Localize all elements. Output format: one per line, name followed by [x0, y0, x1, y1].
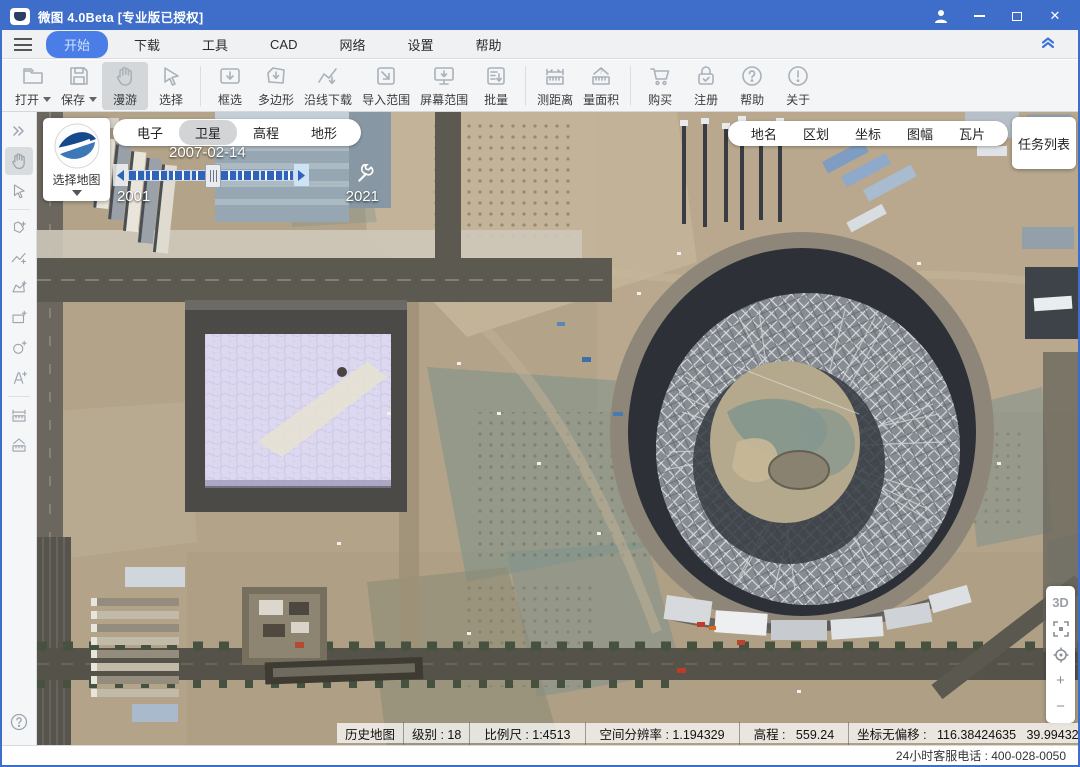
menu-tab-help[interactable]: 帮助: [460, 31, 518, 58]
buy-button[interactable]: 购买: [637, 62, 683, 110]
polygon-download-button[interactable]: 多边形: [253, 62, 299, 110]
footer-bar: 24小时客服电话 : 400-028-0050: [2, 745, 1078, 765]
sidebar-expand-icon[interactable]: [5, 117, 33, 145]
save-button[interactable]: 保存: [56, 62, 102, 110]
layer-tabs: 电子 卫星 高程 地形: [113, 119, 361, 146]
timeline-slider-handle[interactable]: [205, 164, 221, 188]
polyline-download-button[interactable]: 沿线下载: [299, 62, 357, 110]
box-download-icon: [218, 64, 243, 89]
ruler-distance-icon: [543, 64, 568, 89]
timeline-end-year: 2021: [346, 188, 379, 205]
ribbon-toolbar: 打开 保存 漫游 选择 框选 多边形 沿线下载 导入范围: [2, 60, 1078, 112]
service-phone: 24小时客服电话 : 400-028-0050: [896, 747, 1066, 764]
question-circle-icon: [740, 64, 765, 89]
map-status-bar: 历史地图 级别 : 18 比例尺 : 1:4513 空间分辨率 : 1.1943…: [337, 723, 1078, 743]
help-button[interactable]: 帮助: [729, 62, 775, 110]
minimize-button[interactable]: [962, 4, 996, 28]
satellite-imagery: [37, 112, 1078, 745]
menu-tab-download[interactable]: 下载: [118, 31, 176, 58]
timeline-start-year: 2001: [117, 188, 150, 205]
info-tab-placenames[interactable]: 地名: [738, 122, 790, 145]
status-history-map: 历史地图: [337, 722, 404, 745]
sidebar-add-polyline-tool[interactable]: [5, 244, 33, 272]
map-picker-label: 选择地图: [52, 171, 100, 188]
status-zoom-level: 级别 : 18: [404, 722, 470, 745]
menu-tab-cad[interactable]: CAD: [254, 33, 313, 56]
pan-tool-button[interactable]: 漫游: [102, 62, 148, 110]
ruler-area-icon: ?: [589, 64, 614, 89]
status-coordinates: 坐标无偏移 : 116.38424635 39.9943220: [849, 722, 1078, 745]
app-window: 微图 4.0Beta [专业版已授权] ✕ 开始 下载 工具 CAD 网络 设置…: [0, 0, 1080, 767]
user-account-icon[interactable]: [924, 4, 958, 28]
monitor-icon: [432, 64, 457, 89]
map-view-controls: 3D + −: [1046, 586, 1075, 723]
menu-tab-settings[interactable]: 设置: [392, 31, 450, 58]
hamburger-menu-icon[interactable]: [14, 38, 32, 51]
open-button[interactable]: 打开: [10, 62, 56, 110]
timeline-slider-track[interactable]: [128, 170, 294, 181]
left-tool-sidebar: [2, 112, 37, 745]
water-cube-building: [185, 300, 407, 512]
measure-area-button[interactable]: ? 量面积: [578, 62, 624, 110]
status-resolution: 空间分辨率 : 1.194329: [586, 722, 740, 745]
import-box-icon: [374, 64, 399, 89]
sidebar-help-icon[interactable]: [5, 708, 33, 736]
map-source-picker[interactable]: 选择地图: [43, 118, 110, 201]
app-logo-icon: [10, 8, 30, 25]
register-button[interactable]: 注册: [683, 62, 729, 110]
layer-tab-terrain[interactable]: 地形: [295, 120, 353, 145]
sidebar-add-polygon-tool[interactable]: [5, 214, 33, 242]
fullscreen-icon[interactable]: [1049, 617, 1073, 640]
menu-tab-network[interactable]: 网络: [324, 31, 382, 58]
info-tab-mapsheet[interactable]: 图幅: [894, 122, 946, 145]
layer-tab-vector[interactable]: 电子: [121, 120, 179, 145]
timeline-prev-button[interactable]: [113, 164, 128, 186]
maximize-button[interactable]: [1000, 4, 1034, 28]
sidebar-pan-tool[interactable]: [5, 147, 33, 175]
title-bar: 微图 4.0Beta [专业版已授权] ✕: [2, 2, 1078, 30]
layer-tab-satellite[interactable]: 卫星: [179, 120, 237, 145]
timeline-settings-wrench-icon[interactable]: [356, 164, 376, 189]
save-icon: [67, 64, 92, 89]
sidebar-measure-area-tool[interactable]: [5, 431, 33, 459]
polyline-download-icon: [316, 64, 341, 89]
collapse-ribbon-icon[interactable]: [1040, 34, 1056, 55]
status-elevation: 高程 : 559.24: [740, 722, 850, 745]
task-list-button[interactable]: 任务列表: [1012, 117, 1076, 169]
sidebar-measure-distance-tool[interactable]: [5, 401, 33, 429]
cart-icon: [648, 64, 673, 89]
lock-icon: [694, 64, 719, 89]
folder-icon: [21, 64, 46, 89]
sidebar-add-rect-tool[interactable]: [5, 304, 33, 332]
window-title: 微图 4.0Beta [专业版已授权]: [38, 7, 203, 26]
info-circle-icon: [786, 64, 811, 89]
polygon-download-icon: [264, 64, 289, 89]
sidebar-select-tool[interactable]: [5, 177, 33, 205]
timeline-next-button[interactable]: [294, 164, 309, 186]
info-tab-districts[interactable]: 区划: [790, 122, 842, 145]
cursor-icon: [159, 64, 184, 89]
layer-tab-elevation[interactable]: 高程: [237, 120, 295, 145]
toggle-3d-button[interactable]: 3D: [1049, 591, 1073, 614]
temple-compound: [242, 587, 327, 665]
info-tab-coordinates[interactable]: 坐标: [842, 122, 894, 145]
status-scale: 比例尺 : 1:4513: [470, 722, 585, 745]
about-button[interactable]: 关于: [775, 62, 821, 110]
menu-tab-tools[interactable]: 工具: [186, 31, 244, 58]
import-extent-button[interactable]: 导入范围: [357, 62, 415, 110]
chevron-down-icon: [72, 190, 82, 201]
menu-tab-start[interactable]: 开始: [46, 31, 108, 58]
info-tabs: 地名 区划 坐标 图幅 瓦片: [728, 121, 1008, 146]
menu-bar: 开始 下载 工具 CAD 网络 设置 帮助: [2, 30, 1078, 59]
birds-nest-stadium: [610, 232, 994, 632]
screen-extent-button[interactable]: 屏幕范围: [415, 62, 473, 110]
rect-select-download-button[interactable]: 框选: [207, 62, 253, 110]
sidebar-add-area-tool[interactable]: [5, 274, 33, 302]
zoom-in-button[interactable]: +: [1049, 669, 1073, 692]
sidebar-add-circle-tool[interactable]: [5, 334, 33, 362]
globe-logo-icon: [54, 123, 100, 169]
hand-icon: [113, 64, 138, 89]
list-download-icon: [484, 64, 509, 89]
zoom-out-button[interactable]: −: [1049, 695, 1073, 718]
measure-distance-button[interactable]: 测距离: [532, 62, 578, 110]
sidebar-add-text-tool[interactable]: [5, 364, 33, 392]
select-tool-button[interactable]: 选择: [148, 62, 194, 110]
svg-text:?: ?: [599, 69, 603, 76]
close-button[interactable]: ✕: [1038, 4, 1072, 28]
batch-download-button[interactable]: 批量: [473, 62, 519, 110]
timeline-current-date: 2007-02-14: [169, 144, 246, 161]
info-tab-tiles[interactable]: 瓦片: [946, 122, 998, 145]
locate-icon[interactable]: [1049, 643, 1073, 666]
satellite-map-viewport[interactable]: 选择地图 电子 卫星 高程 地形 2007-02-14 2001: [37, 112, 1078, 745]
